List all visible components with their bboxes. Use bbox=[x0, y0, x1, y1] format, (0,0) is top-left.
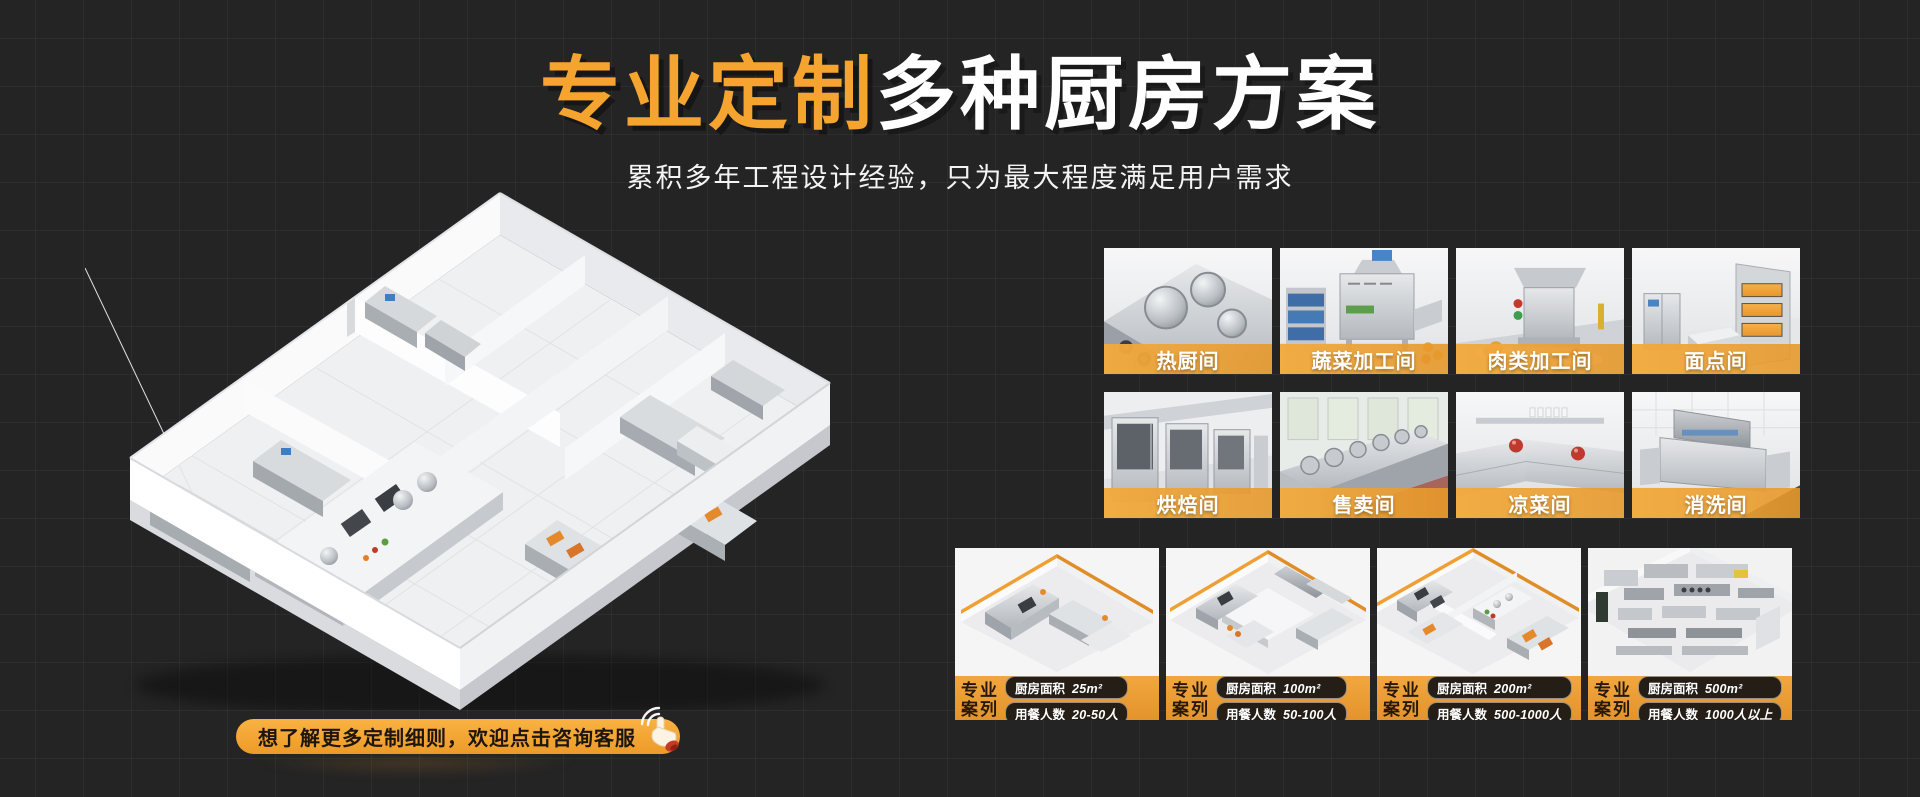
case-badge: 专业 案列 bbox=[961, 682, 999, 719]
kitchen-floorplan-illustration bbox=[85, 190, 845, 710]
case-render-small-kitchen bbox=[955, 548, 1159, 676]
case-badge: 专业 案列 bbox=[1172, 682, 1210, 719]
room-tile-label: 蔬菜加工间 bbox=[1280, 344, 1448, 374]
room-tile-baking-room[interactable]: 烘焙间 bbox=[1104, 392, 1272, 518]
floorplan-3d-render bbox=[85, 190, 845, 710]
room-gallery: 热厨间 蔬菜加工间 bbox=[1104, 248, 1800, 518]
diner-count-pill: 用餐人数20-50人 bbox=[1005, 702, 1128, 720]
kitchen-area-pill: 厨房面积25m² bbox=[1005, 676, 1128, 699]
case-badge: 专业 案列 bbox=[1383, 682, 1421, 719]
case-footer: 专业 案列 厨房面积25m² 用餐人数20-50人 bbox=[955, 676, 1159, 720]
page-title-rest: 多种厨房方案 bbox=[876, 50, 1380, 139]
diner-count-pill: 用餐人数500-1000人 bbox=[1427, 702, 1572, 720]
consult-service-label: 想了解更多定制细则，欢迎点击咨询客服 bbox=[258, 722, 636, 751]
room-tile-label: 烘焙间 bbox=[1104, 488, 1272, 518]
case-card-200m2[interactable]: 专业 案列 厨房面积200m² 用餐人数500-1000人 bbox=[1377, 548, 1581, 720]
kitchen-area-pill: 厨房面积100m² bbox=[1216, 676, 1347, 699]
kitchen-area-pill: 厨房面积500m² bbox=[1638, 676, 1782, 699]
case-card-25m2[interactable]: 专业 案列 厨房面积25m² 用餐人数20-50人 bbox=[955, 548, 1159, 720]
case-specs: 厨房面积500m² 用餐人数1000人以上 bbox=[1638, 676, 1782, 720]
page-title: 专业定制多种厨房方案 bbox=[0, 50, 1920, 140]
case-badge: 专业 案列 bbox=[1594, 682, 1632, 719]
case-card-500m2[interactable]: 专业 案列 厨房面积500m² 用餐人数1000人以上 bbox=[1588, 548, 1792, 720]
kitchen-area-pill: 厨房面积200m² bbox=[1427, 676, 1572, 699]
room-tile-vegetable-processing[interactable]: 蔬菜加工间 bbox=[1280, 248, 1448, 374]
room-tile-dishwashing-room[interactable]: 消洗间 bbox=[1632, 392, 1800, 518]
diner-count-pill: 用餐人数50-100人 bbox=[1216, 702, 1347, 720]
case-render-xlarge-kitchen bbox=[1588, 548, 1792, 676]
case-gallery: 专业 案列 厨房面积25m² 用餐人数20-50人 bbox=[955, 548, 1792, 720]
room-tile-serving-room[interactable]: 售卖间 bbox=[1280, 392, 1448, 518]
case-specs: 厨房面积100m² 用餐人数50-100人 bbox=[1216, 676, 1347, 720]
case-card-100m2[interactable]: 专业 案列 厨房面积100m² 用餐人数50-100人 bbox=[1166, 548, 1370, 720]
room-tile-cold-dish-room[interactable]: 凉菜间 bbox=[1456, 392, 1624, 518]
diner-count-pill: 用餐人数1000人以上 bbox=[1638, 702, 1782, 720]
case-footer: 专业 案列 厨房面积100m² 用餐人数50-100人 bbox=[1166, 676, 1370, 720]
page-title-highlight: 专业定制 bbox=[540, 50, 876, 139]
room-tile-hot-kitchen[interactable]: 热厨间 bbox=[1104, 248, 1272, 374]
room-tile-pastry-room[interactable]: 面点间 bbox=[1632, 248, 1800, 374]
hero-header: 专业定制多种厨房方案 累积多年工程设计经验，只为最大程度满足用户需求 bbox=[0, 50, 1920, 195]
room-tile-label: 售卖间 bbox=[1280, 488, 1448, 518]
case-footer: 专业 案列 厨房面积200m² 用餐人数500-1000人 bbox=[1377, 676, 1581, 720]
page-subtitle: 累积多年工程设计经验，只为最大程度满足用户需求 bbox=[0, 156, 1920, 195]
consult-service-button[interactable]: 想了解更多定制细则，欢迎点击咨询客服 bbox=[236, 719, 680, 754]
case-footer: 专业 案列 厨房面积500m² 用餐人数1000人以上 bbox=[1588, 676, 1792, 720]
kitchen-solutions-hero-section: 专业定制多种厨房方案 累积多年工程设计经验，只为最大程度满足用户需求 bbox=[0, 0, 1920, 797]
room-tile-label: 热厨间 bbox=[1104, 344, 1272, 374]
room-tile-label: 消洗间 bbox=[1632, 488, 1800, 518]
room-tile-meat-processing[interactable]: 肉类加工间 bbox=[1456, 248, 1624, 374]
case-render-large-kitchen bbox=[1377, 548, 1581, 676]
room-tile-label: 凉菜间 bbox=[1456, 488, 1624, 518]
case-specs: 厨房面积25m² 用餐人数20-50人 bbox=[1005, 676, 1128, 720]
room-tile-label: 面点间 bbox=[1632, 344, 1800, 374]
case-specs: 厨房面积200m² 用餐人数500-1000人 bbox=[1427, 676, 1572, 720]
cta-reflection bbox=[250, 758, 580, 778]
room-tile-label: 肉类加工间 bbox=[1456, 344, 1624, 374]
case-render-medium-kitchen bbox=[1166, 548, 1370, 676]
click-hand-icon bbox=[636, 705, 690, 759]
